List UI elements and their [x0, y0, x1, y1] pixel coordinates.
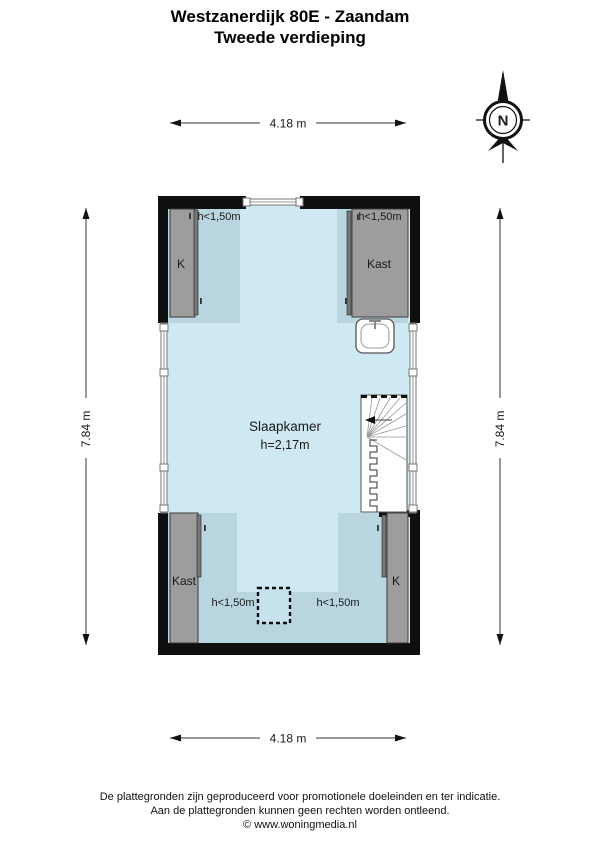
door-mark — [345, 298, 347, 304]
dimension-bottom: 4.18 m — [170, 729, 406, 746]
window-end-cap — [160, 505, 168, 512]
low-height-label: h<1,50m — [358, 211, 401, 223]
window-mullion — [160, 369, 168, 376]
closet-label: Kast — [367, 257, 392, 271]
arrow-right-icon — [395, 735, 406, 742]
room-name-label: Slaapkamer — [249, 419, 322, 434]
stairwell — [361, 395, 407, 512]
closet-top-right: Kast — [347, 209, 408, 317]
window-end-cap — [243, 198, 250, 206]
closet-label: Kast — [172, 574, 197, 588]
dimension-right: 7.84 m — [492, 208, 509, 645]
disclaimer-line-1: De plattegronden zijn geproduceerd voor … — [0, 790, 600, 804]
wall-right-upper — [410, 196, 420, 323]
copyright-line: © www.woningmedia.nl — [0, 818, 600, 832]
arrow-up-icon — [83, 208, 90, 219]
door-mark — [200, 298, 202, 304]
skylight — [258, 588, 290, 623]
dimension-label: 7.84 m — [493, 411, 507, 448]
window-end-cap — [296, 198, 303, 206]
wall-left-lower — [158, 513, 168, 655]
dimension-label: 4.18 m — [270, 117, 307, 131]
window-mullion — [409, 369, 417, 376]
closet-top-left: K — [170, 209, 198, 317]
low-height-label: h<1,50m — [197, 211, 240, 223]
closet-door — [382, 515, 386, 577]
arrow-right-icon — [395, 120, 406, 127]
closet-bottom-left: Kast — [170, 513, 201, 643]
room-height-label: h=2,17m — [261, 438, 310, 452]
closet-door — [194, 210, 198, 315]
closet-label: K — [177, 257, 185, 271]
wall-top-right-segment — [300, 196, 420, 209]
floorplan-drawing: N — [0, 0, 600, 848]
window-left — [160, 323, 168, 513]
closet-label: K — [392, 574, 400, 588]
window-end-cap — [409, 505, 417, 512]
stairs — [361, 395, 407, 512]
compass-icon: N — [476, 70, 530, 163]
arrow-down-icon — [83, 634, 90, 645]
wall-right-lower — [410, 513, 420, 655]
door-mark — [204, 525, 206, 531]
low-height-label: h<1,50m — [316, 597, 359, 609]
window-end-cap — [409, 324, 417, 331]
wall-bottom — [158, 643, 420, 655]
disclaimer: De plattegronden zijn geproduceerd voor … — [0, 790, 600, 832]
low-height-label: h<1,50m — [211, 597, 254, 609]
closet-door — [347, 211, 351, 315]
closet-door — [197, 515, 201, 577]
wall-top-left-segment — [158, 196, 246, 209]
door-mark — [377, 525, 379, 531]
arrow-left-icon — [170, 735, 181, 742]
window-right — [409, 323, 417, 513]
window-top — [243, 198, 303, 206]
arrow-left-icon — [170, 120, 181, 127]
compass-north-label: N — [498, 113, 509, 130]
dimension-label: 4.18 m — [270, 732, 307, 746]
window-mullion — [160, 464, 168, 471]
dimension-left: 7.84 m — [78, 208, 95, 645]
window-mullion — [409, 464, 417, 471]
arrow-up-icon — [497, 208, 504, 219]
floorplan-page: Westzanerdijk 80E - Zaandam Tweede verdi… — [0, 0, 600, 848]
door-mark — [189, 213, 191, 219]
window-end-cap — [160, 324, 168, 331]
dimension-label: 7.84 m — [79, 411, 93, 448]
arrow-down-icon — [497, 634, 504, 645]
wall-left-upper — [158, 196, 168, 323]
disclaimer-line-2: Aan de plattegronden kunnen geen rechten… — [0, 804, 600, 818]
dimension-top: 4.18 m — [170, 114, 406, 131]
sink — [356, 319, 394, 353]
